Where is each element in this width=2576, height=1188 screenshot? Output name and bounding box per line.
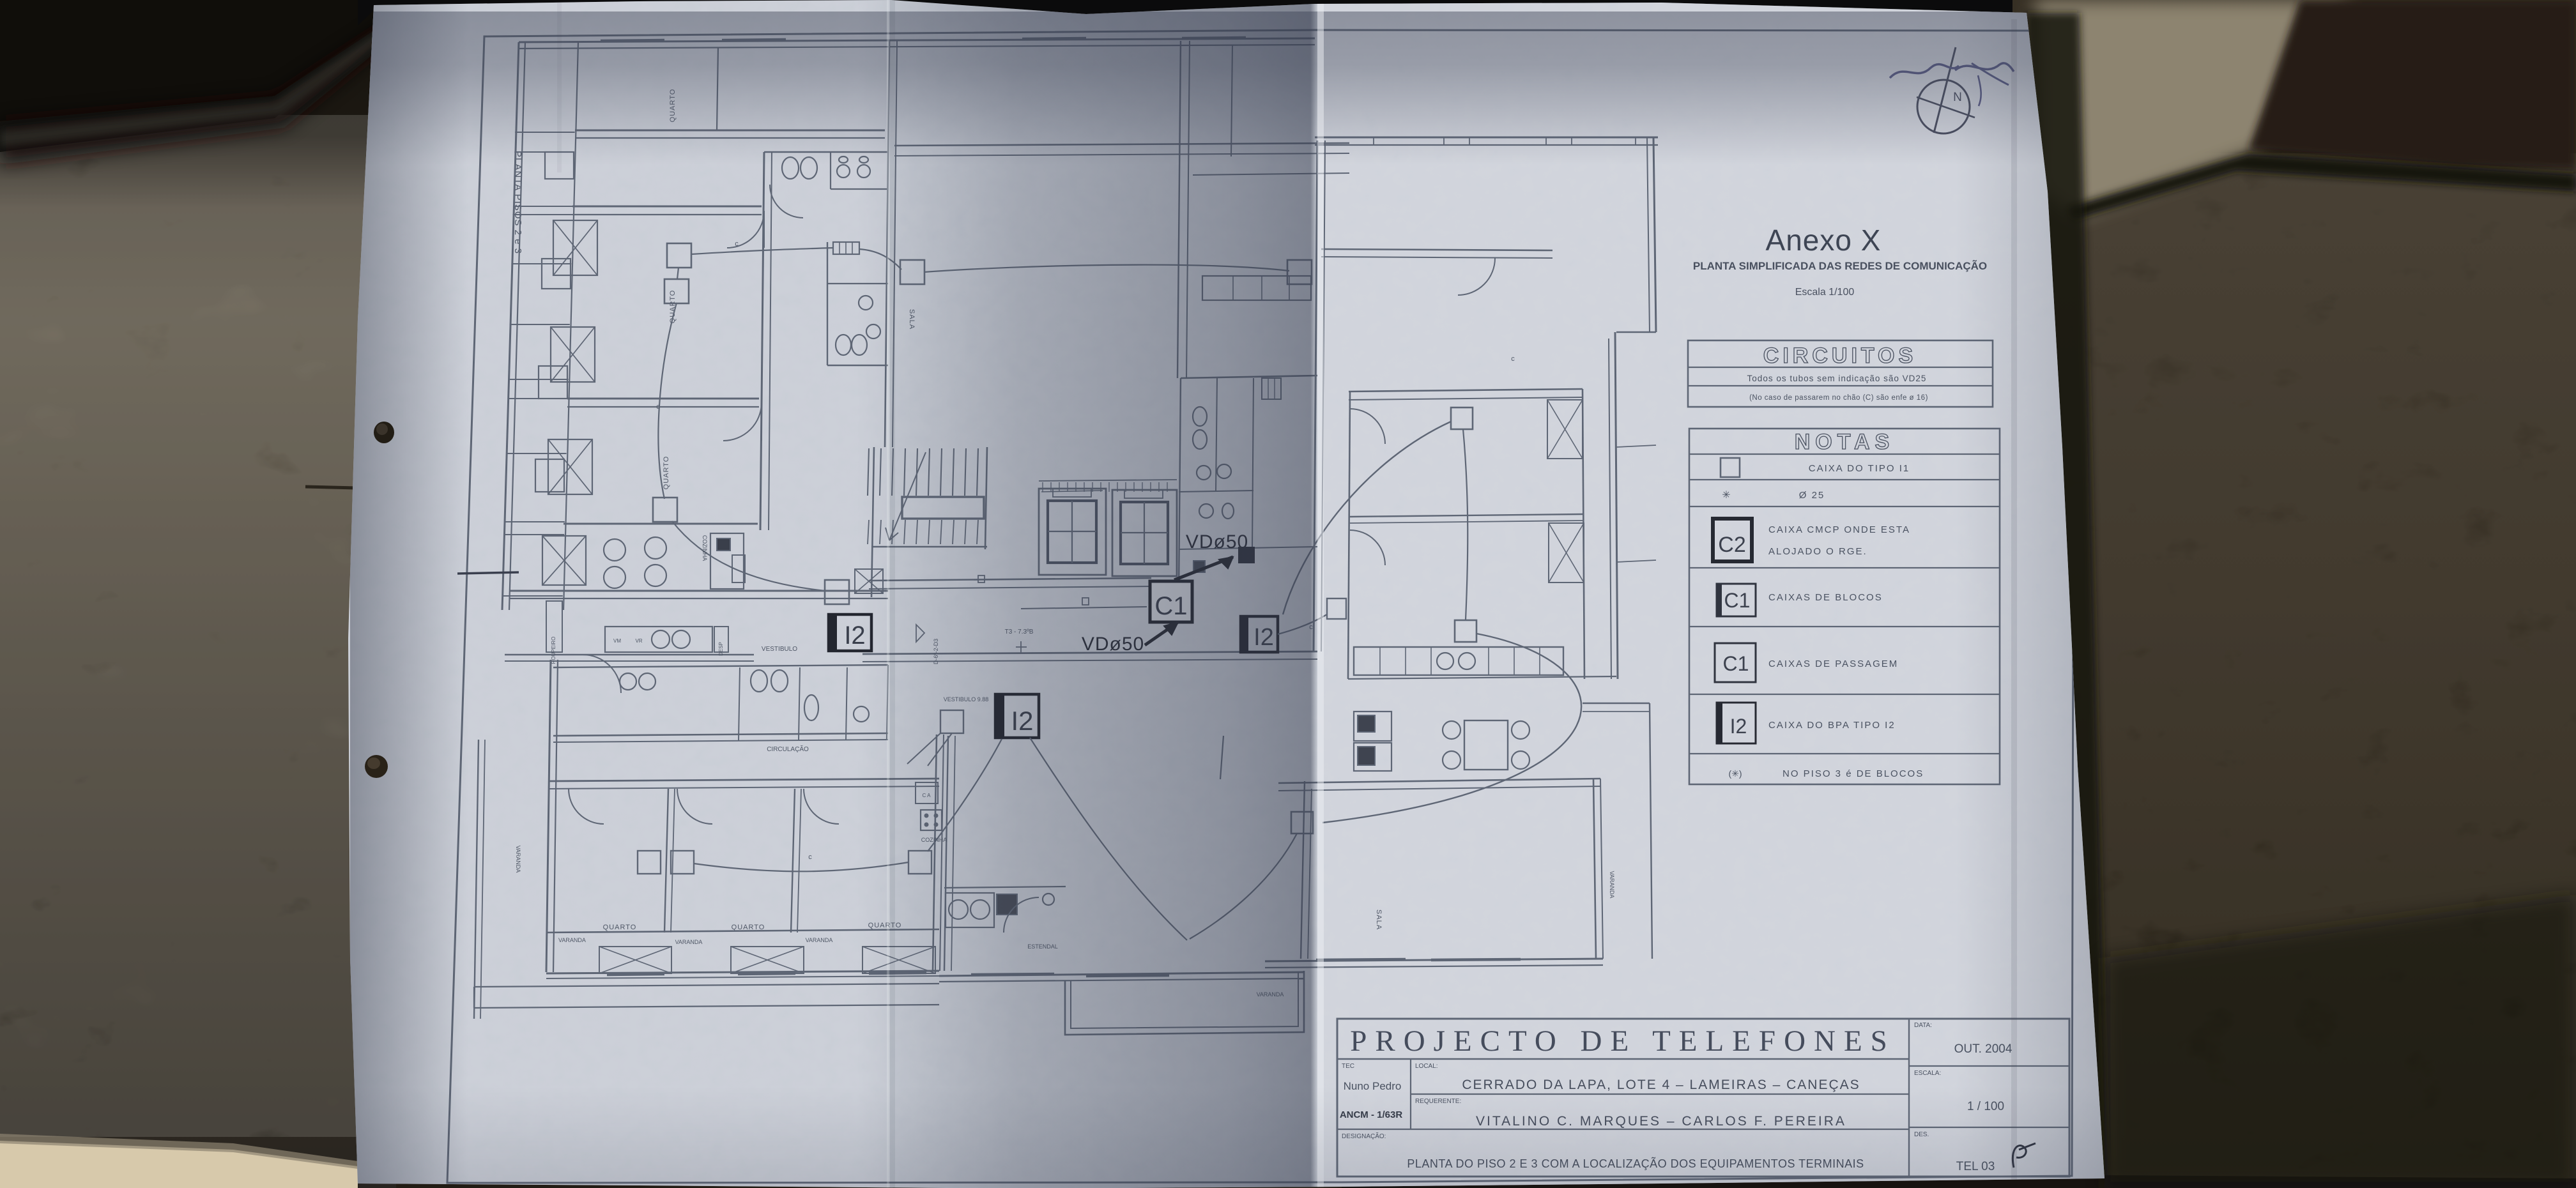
- svg-text:I2: I2: [1730, 715, 1747, 738]
- svg-text:VESTIBULO: VESTIBULO: [762, 646, 797, 653]
- svg-text:PROJECTO DE TELEFONES: PROJECTO DE TELEFONES: [1350, 1024, 1896, 1058]
- svg-text:C2: C2: [1718, 533, 1745, 557]
- svg-text:Ø 25: Ø 25: [1799, 490, 1825, 501]
- svg-text:DATA:: DATA:: [1914, 1022, 1932, 1029]
- svg-text:COZINHA: COZINHA: [701, 535, 708, 561]
- svg-text:VARANDA: VARANDA: [515, 846, 521, 873]
- svg-text:ROUPEIRO: ROUPEIRO: [551, 637, 556, 664]
- svg-text:NO PISO 3 é DE BLOCOS: NO PISO 3 é DE BLOCOS: [1782, 768, 1924, 779]
- svg-text:C1: C1: [1723, 652, 1749, 675]
- svg-text:VR: VR: [635, 638, 642, 644]
- svg-text:CAIXA CMCP ONDE ESTA: CAIXA CMCP ONDE ESTA: [1768, 524, 1910, 535]
- svg-text:ESCALA:: ESCALA:: [1914, 1070, 1941, 1077]
- svg-text:Todos os tubos sem indicação s: Todos os tubos sem indicação são VD25: [1747, 374, 1927, 383]
- svg-text:VM: VM: [613, 638, 621, 644]
- svg-text:TEC: TEC: [1342, 1063, 1354, 1070]
- svg-text:VARANDA: VARANDA: [675, 939, 703, 945]
- svg-text:ALOJADO O RGE.: ALOJADO O RGE.: [1768, 546, 1867, 557]
- svg-text:VARANDA: VARANDA: [1609, 871, 1615, 899]
- svg-text:PLANTA SIMPLIFICADA DAS REDES: PLANTA SIMPLIFICADA DAS REDES DE COMUNIC…: [1693, 259, 1987, 272]
- svg-text:C1: C1: [1724, 589, 1751, 612]
- svg-text:NOTAS: NOTAS: [1795, 430, 1894, 454]
- svg-text:CIRCULAÇÃO: CIRCULAÇÃO: [767, 745, 809, 753]
- svg-text:QUARTO: QUARTO: [603, 924, 637, 931]
- svg-text:c: c: [656, 403, 660, 411]
- svg-text:(No caso de passarem no chão (: (No caso de passarem no chão (C) são enf…: [1749, 394, 1928, 402]
- svg-text:SALA: SALA: [1375, 910, 1383, 930]
- svg-text:DESP: DESP: [718, 642, 724, 656]
- svg-text:CAIXA DO BPA TIPO I2: CAIXA DO BPA TIPO I2: [1768, 720, 1896, 731]
- svg-text:✳: ✳: [1722, 490, 1730, 501]
- svg-text:Anexo X: Anexo X: [1766, 224, 1882, 257]
- svg-text:LOCAL:: LOCAL:: [1415, 1063, 1438, 1070]
- svg-text:(✳): (✳): [1728, 768, 1742, 779]
- svg-text:VARANDA: VARANDA: [558, 937, 586, 943]
- svg-text:CAIXAS DE BLOCOS: CAIXAS DE BLOCOS: [1768, 592, 1883, 603]
- svg-text:CIRCUITOS: CIRCUITOS: [1763, 344, 1917, 368]
- svg-text:CAIXA DO TIPO I1: CAIXA DO TIPO I1: [1809, 463, 1910, 474]
- svg-text:VARANDA: VARANDA: [806, 937, 833, 943]
- svg-text:Escala 1/100: Escala 1/100: [1795, 287, 1855, 298]
- svg-text:QUARTO: QUARTO: [663, 456, 670, 490]
- svg-text:c: c: [1511, 355, 1515, 363]
- svg-text:c: c: [735, 240, 739, 248]
- svg-text:CAIXAS DE PASSAGEM: CAIXAS DE PASSAGEM: [1768, 659, 1898, 669]
- svg-text:c: c: [808, 853, 812, 861]
